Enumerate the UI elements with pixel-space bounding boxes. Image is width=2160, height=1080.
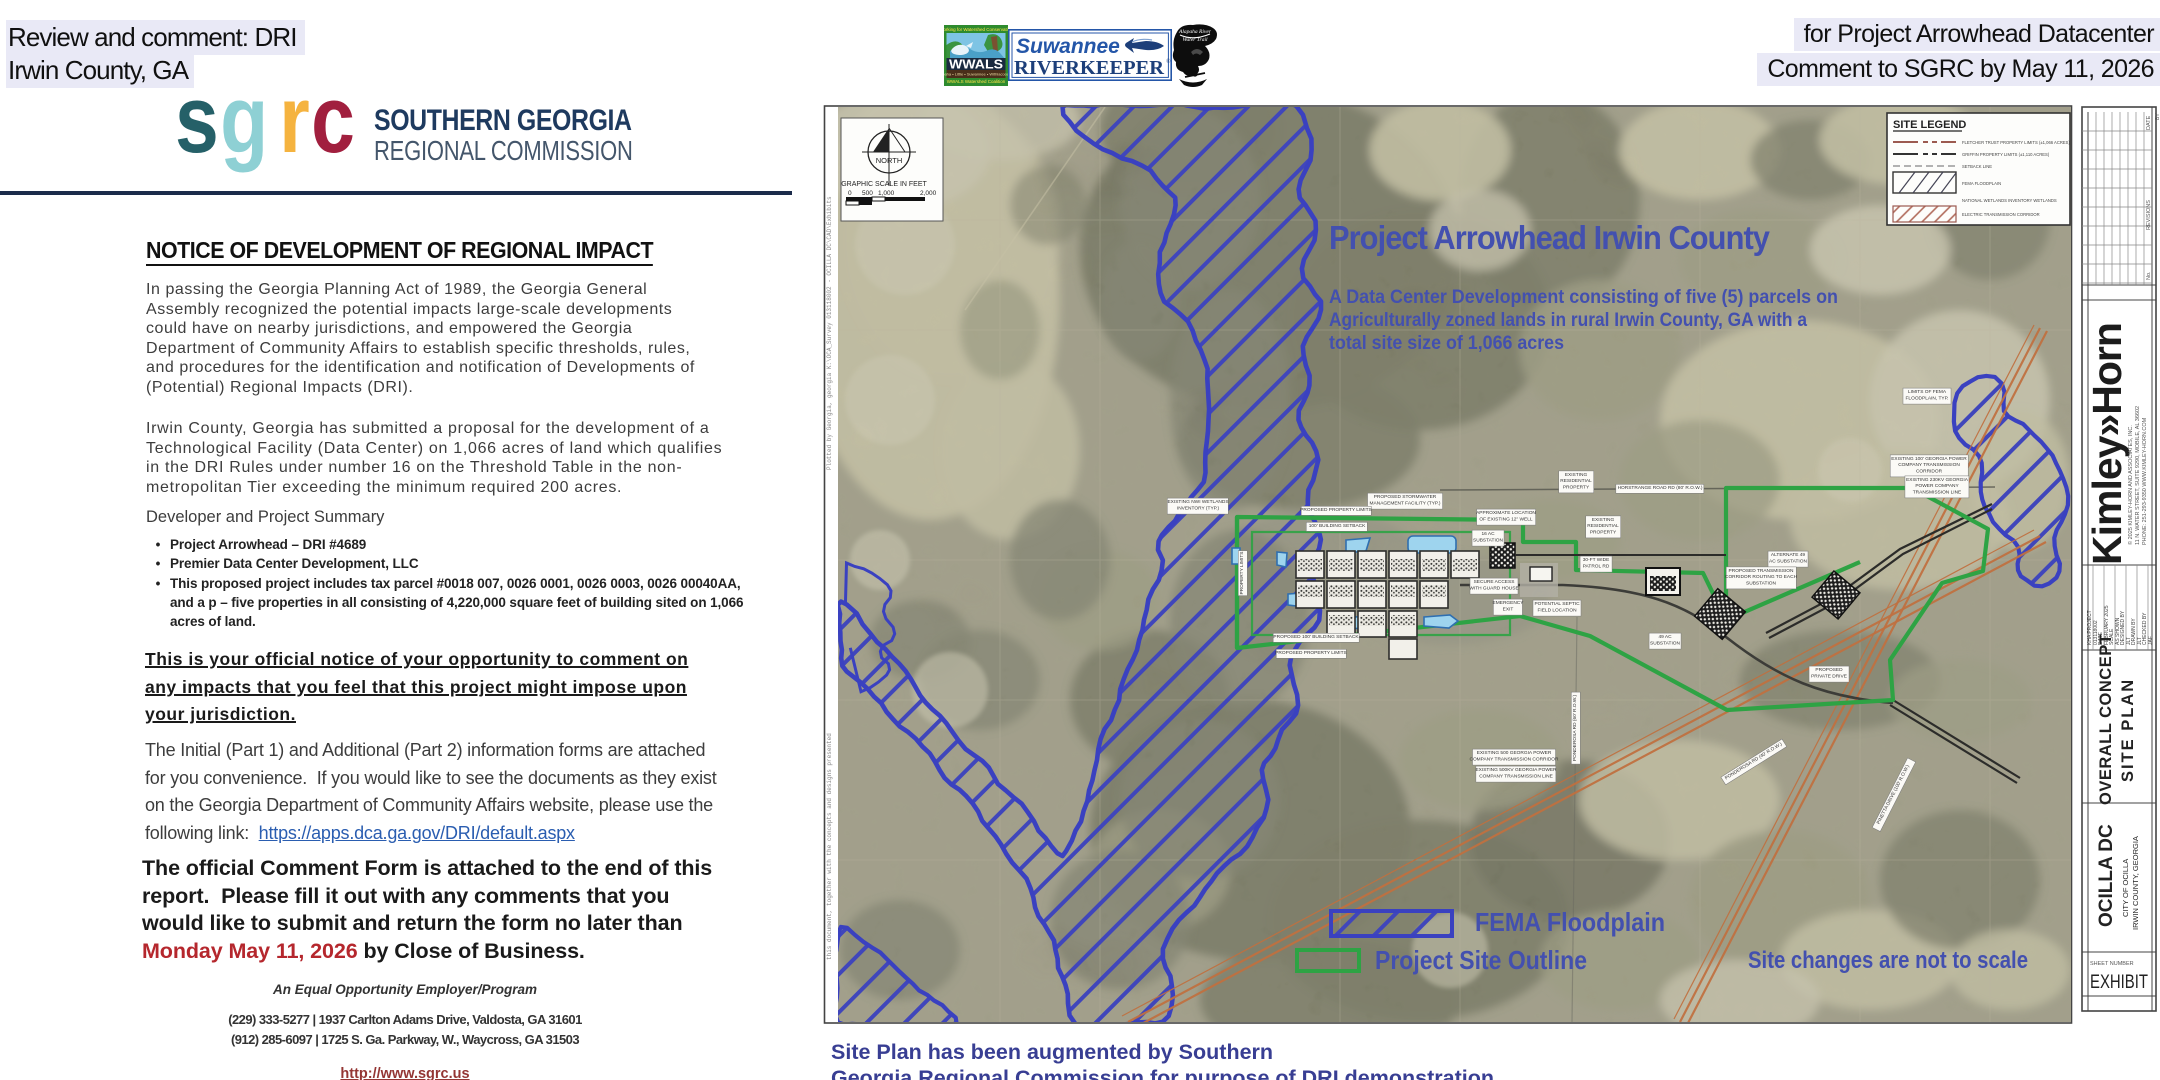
- svg-text:Suwannee: Suwannee: [1016, 35, 1120, 58]
- svg-text:OF EXISTING 12" WELL: OF EXISTING 12" WELL: [1479, 516, 1532, 522]
- svg-text:HORSTRANGE ROAD RD (80' R.O.W.: HORSTRANGE ROAD RD (80' R.O.W.): [1618, 485, 1703, 491]
- svg-text:A Data Center Development cons: A Data Center Development consisting of …: [1329, 287, 1838, 308]
- svg-text:SECURE ACCESS: SECURE ACCESS: [1474, 579, 1515, 585]
- svg-text:No.: No.: [2146, 271, 2152, 280]
- svg-text:30-FT WIDE: 30-FT WIDE: [1583, 557, 1610, 563]
- svg-text:Plotted by Georgia, georgia: Plotted by Georgia, georgia K:\OCA_Surve…: [826, 196, 833, 470]
- svg-text:SUBSTATION: SUBSTATION: [1473, 537, 1503, 543]
- svg-text:PROPERTY: PROPERTY: [1590, 530, 1617, 536]
- svg-text:SUBSTATION: SUBSTATION: [1746, 581, 1776, 587]
- svg-text:total site size of 1,066 acres: total site size of 1,066 acres: [1329, 333, 1564, 354]
- svg-text:PRIVATE DRIVE: PRIVATE DRIVE: [1811, 673, 1847, 679]
- svg-text:RIVERKEEPER: RIVERKEEPER: [1014, 57, 1165, 79]
- svg-text:PROPOSED TRANSMISSION: PROPOSED TRANSMISSION: [1729, 568, 1794, 574]
- svg-text:REVISIONS: REVISIONS: [2146, 200, 2152, 230]
- svg-text:0: 0: [848, 190, 852, 197]
- svg-text:PROPERTY: PROPERTY: [1563, 485, 1590, 491]
- svg-text:JAF: JAF: [2148, 636, 2154, 645]
- svg-text:SUBSTATION: SUBSTATION: [1650, 640, 1680, 646]
- svg-text:PROPOSED STORMWATER: PROPOSED STORMWATER: [1374, 494, 1437, 500]
- svg-text:MANAGEMENT FACILITY (TYP.): MANAGEMENT FACILITY (TYP.): [1370, 500, 1441, 506]
- svg-text:WWALS Watershed Coalition: WWALS Watershed Coalition: [947, 79, 1006, 84]
- svg-text:Project Site Outline: Project Site Outline: [1375, 945, 1587, 975]
- svg-text:INVENTORY (TYP.): INVENTORY (TYP.): [1177, 505, 1220, 511]
- svg-text:FIELD LOCATION: FIELD LOCATION: [1537, 607, 1577, 613]
- svg-text:PONDEROSA RD (60' R.O.W.): PONDEROSA RD (60' R.O.W.): [1572, 694, 1578, 761]
- svg-text:Alapaha River: Alapaha River: [1178, 29, 1212, 35]
- svg-text:CORRIDOR: CORRIDOR: [1916, 469, 1943, 475]
- svg-text:OVERALL CONCEPT: OVERALL CONCEPT: [2097, 634, 2115, 805]
- svg-text:COMPANY TRANSMISSION CORRIDOR: COMPANY TRANSMISSION CORRIDOR: [1469, 756, 1559, 762]
- svg-text:POWER COMPANY: POWER COMPANY: [1915, 483, 1959, 489]
- svg-text:AC SUBSTATION: AC SUBSTATION: [1769, 558, 1807, 564]
- svg-text:WWALS: WWALS: [949, 58, 1003, 72]
- svg-text:FEMA Floodplain: FEMA Floodplain: [1475, 907, 1665, 937]
- svg-text:EXISTING: EXISTING: [1565, 472, 1588, 478]
- svg-text:PROPOSED PROPERTY LIMITS: PROPOSED PROPERTY LIMITS: [1275, 650, 1347, 656]
- svg-text:EMERGENCY: EMERGENCY: [1493, 600, 1525, 606]
- svg-text:FEMA FLOODPLAIN: FEMA FLOODPLAIN: [1962, 181, 2001, 186]
- svg-text:CITY OF OCILLA: CITY OF OCILLA: [2121, 859, 2130, 917]
- svg-text:SHEET NUMBER: SHEET NUMBER: [2090, 961, 2134, 967]
- svg-text:POTENTIAL SEPTIC: POTENTIAL SEPTIC: [1534, 601, 1580, 607]
- svg-text:EXISTING 230KV GEORGIA: EXISTING 230KV GEORGIA: [1906, 477, 1969, 483]
- svg-text:© 2025 KIMLEY-HORN AND ASSOCIA: © 2025 KIMLEY-HORN AND ASSOCIATES, INC.: [2127, 425, 2134, 545]
- svg-text:EXISTING 500KV GEORGIA POWER: EXISTING 500KV GEORGIA POWER: [1475, 767, 1557, 773]
- svg-text:SITE PLAN: SITE PLAN: [2119, 678, 2137, 782]
- svg-text:NORTH: NORTH: [876, 156, 903, 165]
- svg-text:500: 500: [862, 190, 873, 197]
- svg-text:this document, together with t: this document, together with the concept…: [826, 733, 833, 960]
- svg-text:Kimley»Horn: Kimley»Horn: [2084, 323, 2130, 565]
- svg-text:SITE LEGEND: SITE LEGEND: [1893, 119, 1966, 131]
- svg-text:PROPOSED 100' BUILDING SETBACK: PROPOSED 100' BUILDING SETBACK: [1273, 634, 1359, 640]
- svg-text:EXISTING NWI WETLANDS: EXISTING NWI WETLANDS: [1167, 499, 1228, 505]
- svg-text:PHONE: 251-293-9350 WWW.KIM: PHONE: 251-293-9350 WWW.KIMLEY-HORN.COM: [2142, 417, 2148, 545]
- svg-text:FLOODPLAIN, TYP.: FLOODPLAIN, TYP.: [1905, 395, 1948, 401]
- svg-text:OCILLA DC: OCILLA DC: [2096, 824, 2117, 927]
- svg-text:Water Trail: Water Trail: [1182, 37, 1207, 43]
- svg-text:EXISTING 500 GEORGIA POWER: EXISTING 500 GEORGIA POWER: [1477, 750, 1552, 756]
- svg-text:TRANSMISSION LINE: TRANSMISSION LINE: [1913, 490, 1962, 496]
- svg-text:WITH GUARD HOUSE: WITH GUARD HOUSE: [1469, 585, 1518, 591]
- svg-text:16 AC: 16 AC: [1481, 531, 1495, 537]
- svg-text:GRAPHIC SCALE IN FEET: GRAPHIC SCALE IN FEET: [841, 181, 927, 188]
- svg-text:Agriculturally zoned lands in: Agriculturally zoned lands in rural Irwi…: [1329, 310, 1807, 331]
- svg-text:EXHIBIT: EXHIBIT: [2090, 972, 2148, 993]
- svg-text:Alapaha • Little • Suwannee •: Alapaha • Little • Suwannee • Withlacooc…: [944, 72, 1008, 77]
- svg-text:49 AC: 49 AC: [1658, 634, 1672, 640]
- svg-text:ALTERNATE 49: ALTERNATE 49: [1771, 552, 1806, 558]
- svg-text:EXISTING 100' GEORGIA POWER: EXISTING 100' GEORGIA POWER: [1891, 456, 1967, 462]
- svg-text:APPROXIMATE LOCATION: APPROXIMATE LOCATION: [1476, 510, 1536, 516]
- svg-text:PATROL RD: PATROL RD: [1583, 563, 1610, 569]
- svg-text:PROPERTY LIMITS: PROPERTY LIMITS: [1239, 551, 1245, 594]
- svg-text:100' BUILDING SETBACK: 100' BUILDING SETBACK: [1309, 523, 1366, 529]
- svg-text:BY: BY: [2155, 113, 2160, 120]
- svg-text:11 N. WATER STREET, SUITE 9290: 11 N. WATER STREET, SUITE 9290, MOBILE, …: [2135, 406, 2141, 545]
- svg-text:RESIDENTIAL: RESIDENTIAL: [1587, 523, 1619, 529]
- svg-text:EXIT: EXIT: [1503, 606, 1514, 612]
- svg-text:NATIONAL WETLANDS INVENTORY WE: NATIONAL WETLANDS INVENTORY WETLANDS: [1962, 198, 2057, 203]
- svg-text:FLETCHER TRUST PROPERTY LIMITS: FLETCHER TRUST PROPERTY LIMITS (±1,066 A…: [1962, 140, 2070, 145]
- svg-text:EXISTING: EXISTING: [1592, 517, 1615, 523]
- svg-text:COMPANY TRANSMISSION: COMPANY TRANSMISSION: [1898, 462, 1960, 468]
- svg-text:PROPOSED PROPERTY LIMITS: PROPOSED PROPERTY LIMITS: [1300, 507, 1372, 513]
- svg-text:GRIFFIN PROPERTY LIMITS (±1,11: GRIFFIN PROPERTY LIMITS (±1,110 ACRES): [1962, 152, 2050, 157]
- svg-text:CORRIDOR ROUTING TO EACH: CORRIDOR ROUTING TO EACH: [1725, 574, 1798, 580]
- svg-text:ELECTRIC TRANSMISSION CORRIDOR: ELECTRIC TRANSMISSION CORRIDOR: [1962, 212, 2040, 217]
- svg-text:COMPANY TRANSMISSION LINE: COMPANY TRANSMISSION LINE: [1479, 773, 1553, 779]
- svg-text:Working for Watershed Conserva: Working for Watershed Conservation: [944, 27, 1008, 32]
- svg-text:LIMITS OF FEMA: LIMITS OF FEMA: [1908, 389, 1947, 395]
- svg-text:DATE: DATE: [2146, 115, 2152, 130]
- svg-text:2,000: 2,000: [920, 190, 937, 197]
- svg-text:1,000: 1,000: [878, 190, 895, 197]
- svg-text:SETBACK LINE: SETBACK LINE: [1962, 164, 1992, 169]
- svg-text:Project Arrowhead Irwin County: Project Arrowhead Irwin County: [1329, 219, 1771, 256]
- svg-text:PROPOSED: PROPOSED: [1815, 667, 1843, 673]
- svg-text:Site changes are not to scale: Site changes are not to scale: [1748, 947, 2028, 974]
- svg-text:RESIDENTIAL: RESIDENTIAL: [1560, 478, 1592, 484]
- svg-text:IRWIN COUNTY, GEORGIA: IRWIN COUNTY, GEORGIA: [2131, 836, 2140, 930]
